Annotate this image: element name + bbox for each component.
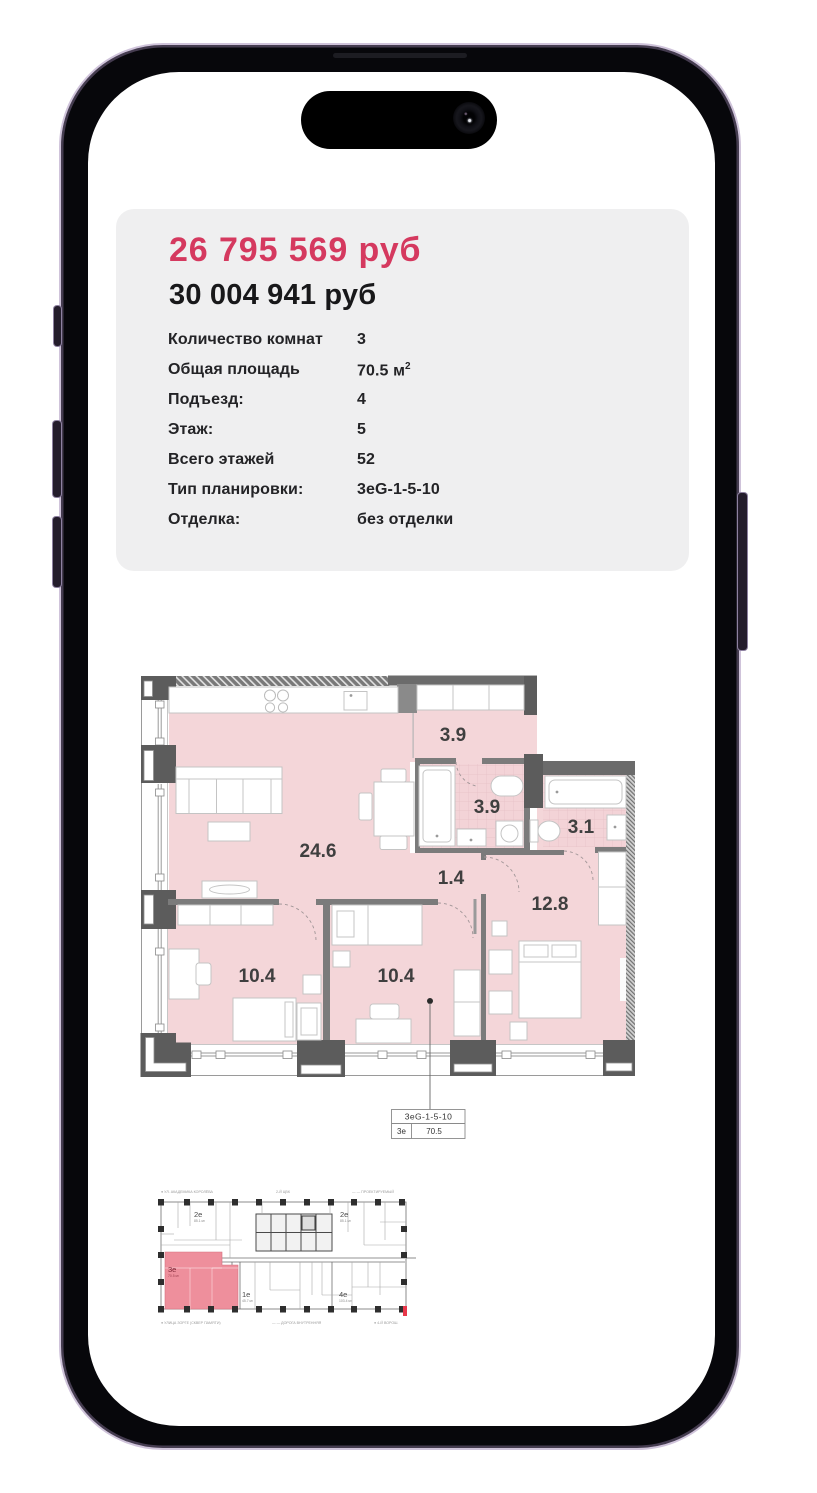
svg-text:70.5 м²: 70.5 м² (168, 1274, 180, 1278)
svg-text:45.7 м²: 45.7 м² (242, 1299, 254, 1303)
svg-text:103.4 м²: 103.4 м² (339, 1299, 353, 1303)
svg-text:1.4: 1.4 (438, 868, 465, 889)
svg-text:3еG-1-5-10: 3еG-1-5-10 (405, 1112, 452, 1122)
svg-text:● УЛИЦА ЗОРГЕ (СКВЕР ПАМЯТИ): ● УЛИЦА ЗОРГЕ (СКВЕР ПАМЯТИ) (161, 1321, 221, 1325)
svg-text:2е: 2е (194, 1210, 202, 1219)
svg-text:2е: 2е (340, 1210, 348, 1219)
svg-text:— — ДОРОГА ВНУТРЕННЯЯ: — — ДОРОГА ВНУТРЕННЯЯ (272, 1321, 322, 1325)
svg-text:24.6: 24.6 (300, 841, 337, 862)
svg-text:85.1 м²: 85.1 м² (340, 1219, 352, 1223)
svg-text:3е: 3е (168, 1265, 176, 1274)
svg-text:10.4: 10.4 (239, 966, 276, 987)
svg-text:85.1 м²: 85.1 м² (194, 1219, 206, 1223)
svg-text:3.9: 3.9 (474, 797, 500, 818)
svg-text:● 4-Й ВОРОШ.: ● 4-Й ВОРОШ. (374, 1321, 398, 1325)
svg-text:3е: 3е (397, 1127, 406, 1136)
svg-text:— — ПРОЕКТИРУЕМЫЙ: — — ПРОЕКТИРУЕМЫЙ (352, 1190, 394, 1194)
svg-text:3.9: 3.9 (440, 725, 466, 746)
svg-text:12.8: 12.8 (532, 894, 569, 915)
svg-text:1е: 1е (242, 1290, 250, 1299)
svg-text:● УЛ. АКАДЕМИКА КОРОЛЁВА: ● УЛ. АКАДЕМИКА КОРОЛЁВА (161, 1190, 214, 1194)
svg-text:10.4: 10.4 (378, 966, 415, 987)
svg-text:3.1: 3.1 (568, 817, 595, 838)
svg-text:2-Й ЦВК: 2-Й ЦВК (276, 1190, 291, 1194)
svg-text:70.5: 70.5 (426, 1127, 442, 1136)
svg-text:4е: 4е (339, 1290, 347, 1299)
